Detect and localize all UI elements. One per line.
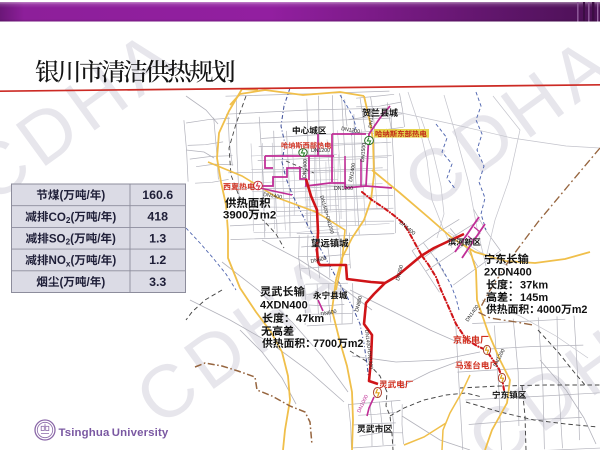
svg-text:47km: 47km xyxy=(296,313,324,325)
svg-text:NO: NO xyxy=(49,254,66,267)
svg-text:1.2: 1.2 xyxy=(149,253,166,267)
svg-text:(: ( xyxy=(59,189,63,202)
svg-text:37km: 37km xyxy=(520,280,548,292)
svg-text:3.3: 3.3 xyxy=(149,275,166,289)
svg-text:DN1600: DN1600 xyxy=(302,159,309,178)
svg-text:2XDN400: 2XDN400 xyxy=(484,267,532,279)
svg-text:1.3: 1.3 xyxy=(149,231,166,245)
svg-text:DN1200: DN1200 xyxy=(311,148,330,154)
svg-text:): ) xyxy=(112,211,116,224)
svg-text:m2: m2 xyxy=(572,304,588,316)
svg-text:): ) xyxy=(101,276,105,289)
svg-text:SO: SO xyxy=(49,232,66,245)
svg-text:(: ( xyxy=(70,232,74,245)
svg-text:University: University xyxy=(112,427,169,439)
svg-text:145m: 145m xyxy=(520,292,548,304)
svg-text:): ) xyxy=(112,254,116,267)
svg-text:4XDN400: 4XDN400 xyxy=(260,300,308,312)
svg-text:3900: 3900 xyxy=(223,210,248,222)
svg-text:(: ( xyxy=(59,276,63,289)
svg-text:DN1200: DN1200 xyxy=(334,186,353,192)
svg-text:418: 418 xyxy=(147,210,168,224)
svg-text:4000: 4000 xyxy=(537,304,561,316)
svg-text:160.6: 160.6 xyxy=(142,188,173,202)
svg-text:CO: CO xyxy=(49,211,66,224)
svg-text:m2: m2 xyxy=(260,210,276,222)
svg-text:7700: 7700 xyxy=(313,338,337,350)
svg-text:Tsinghua: Tsinghua xyxy=(59,427,110,439)
svg-text:): ) xyxy=(112,232,116,245)
svg-text:(: ( xyxy=(70,254,74,267)
svg-text:(: ( xyxy=(70,211,74,224)
svg-text:): ) xyxy=(101,189,105,202)
svg-text:m2: m2 xyxy=(348,338,364,350)
